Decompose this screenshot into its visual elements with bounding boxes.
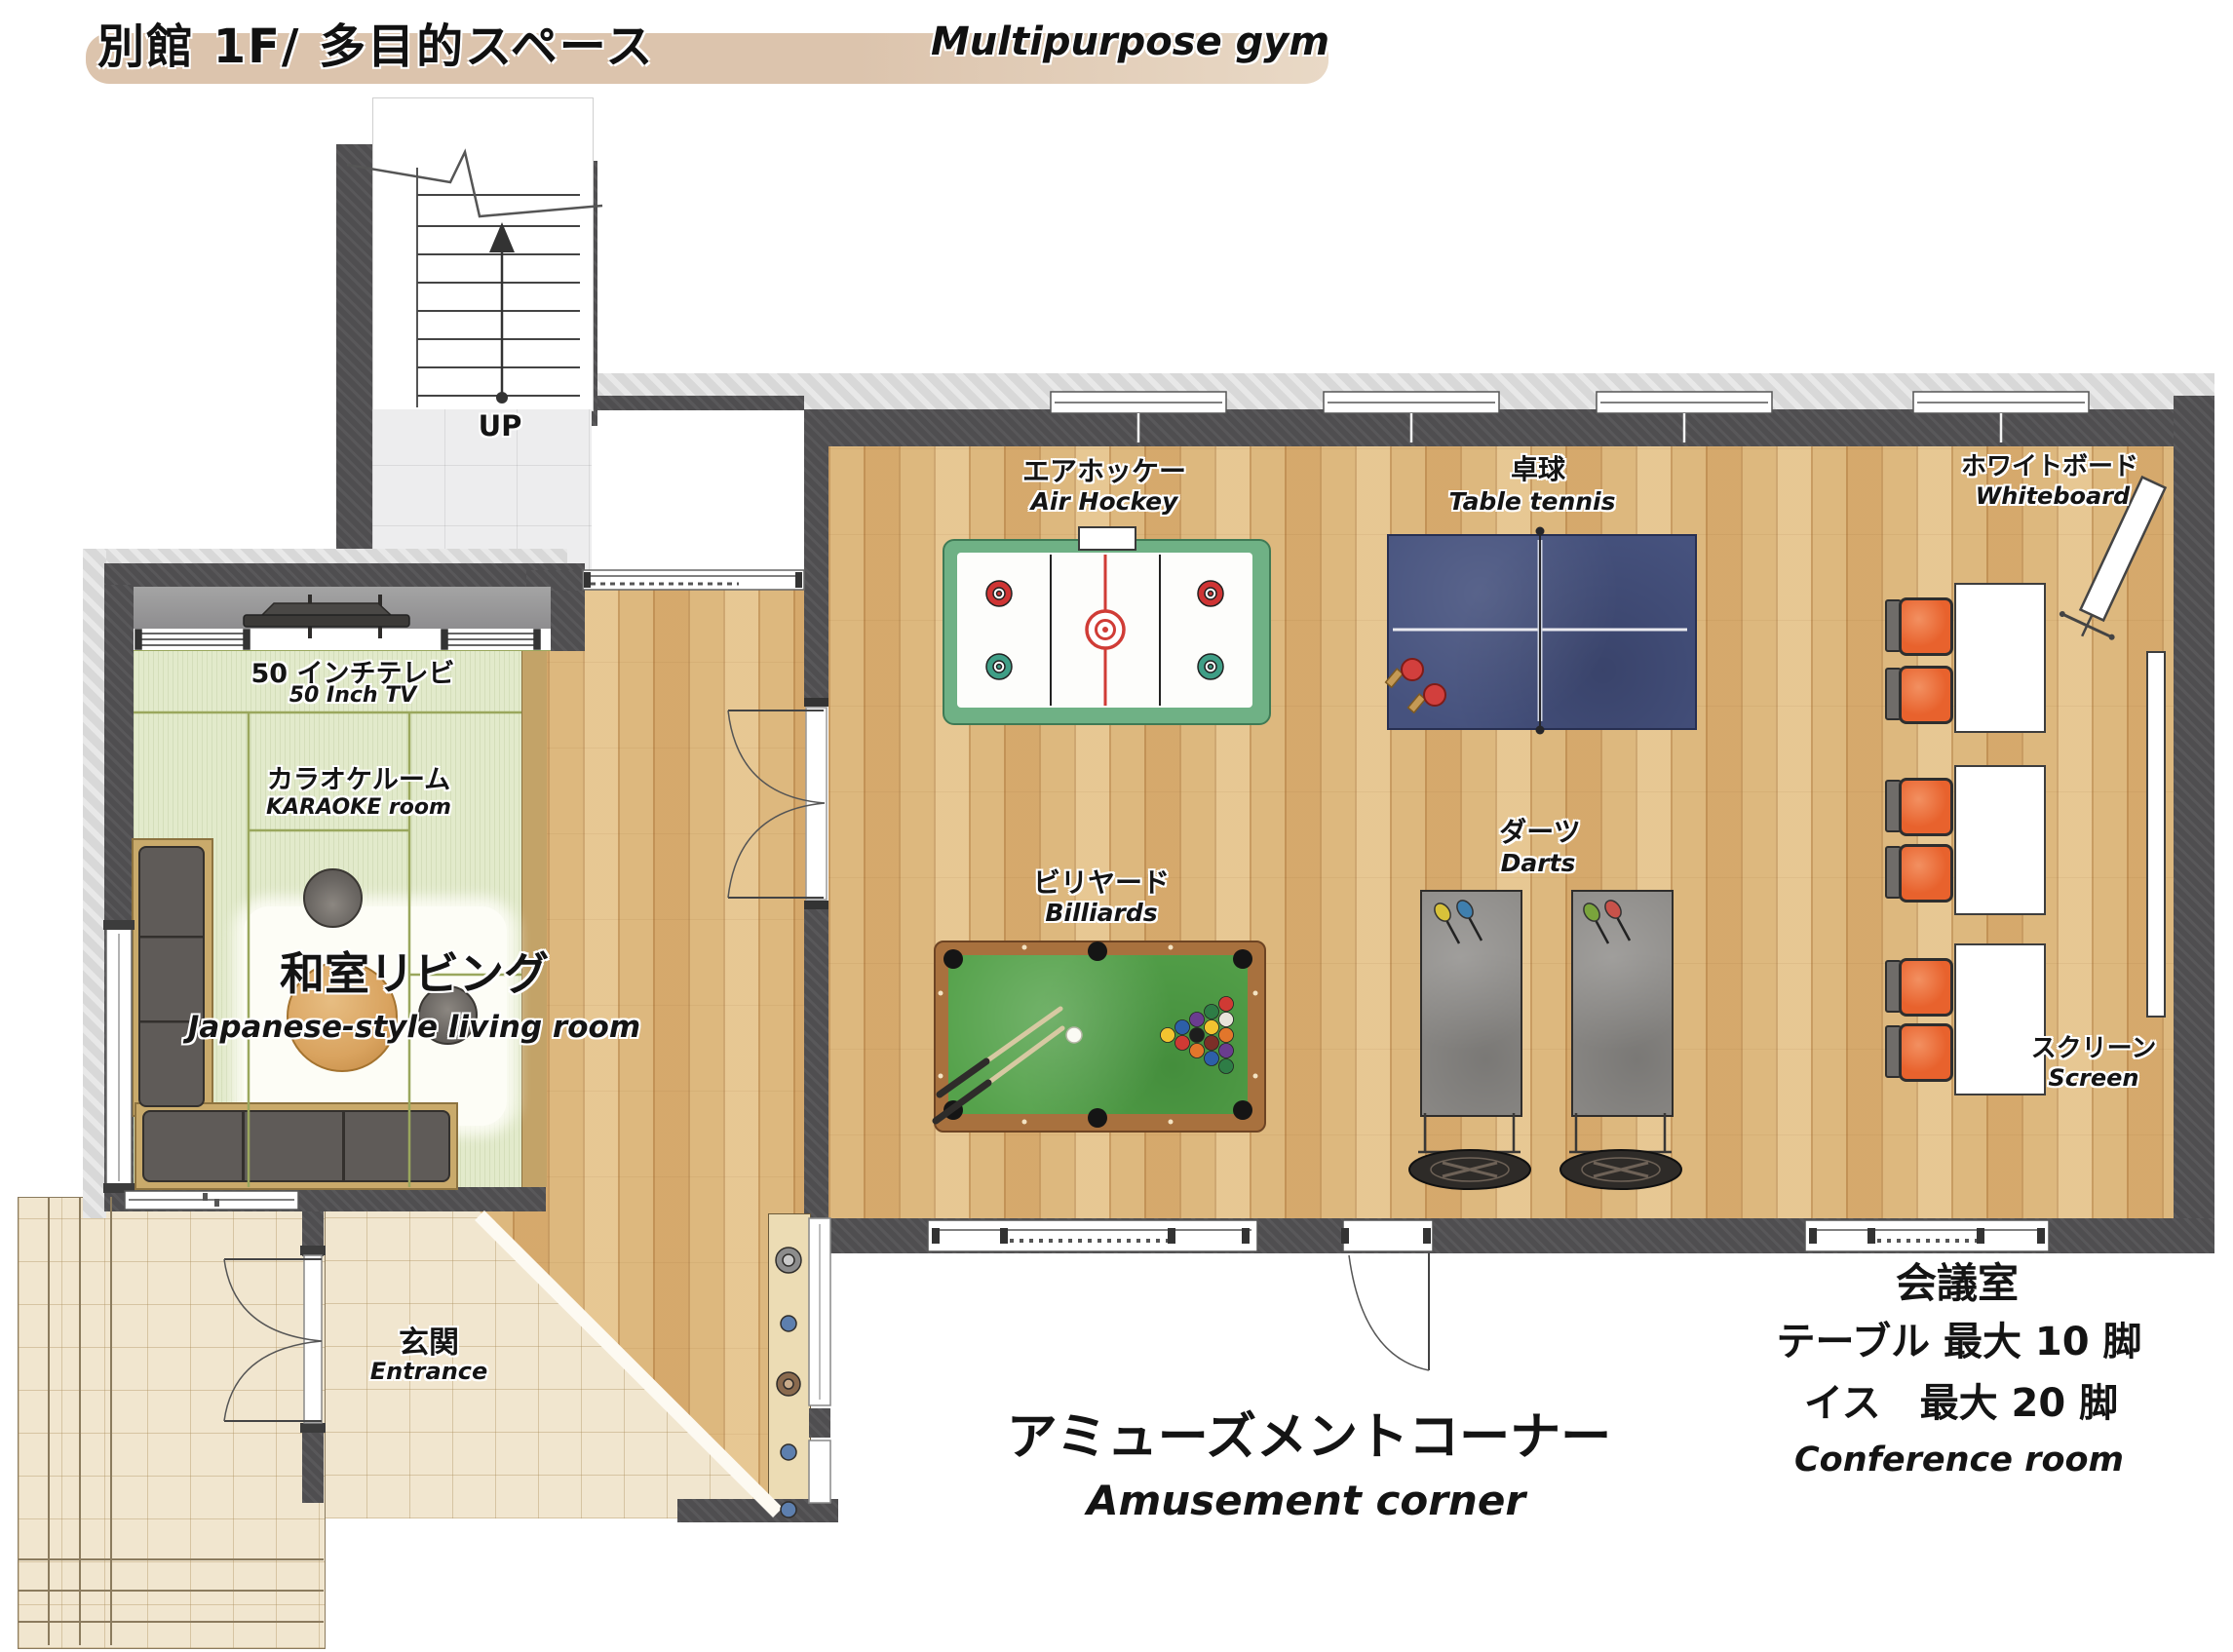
gym-south-door <box>1341 1220 1433 1370</box>
karaoke-label-en: KARAOKE room <box>266 795 451 820</box>
dart-stands <box>1418 1113 1672 1152</box>
living-room-label-en: Japanese-style living room <box>188 1010 640 1045</box>
gym-north-windows <box>1051 392 2089 442</box>
table-tennis-label-en: Table tennis <box>1448 487 1615 516</box>
conference-label-jp: 会議室 <box>1896 1250 2019 1310</box>
screen-label-jp: スクリーン <box>2031 1028 2157 1064</box>
entrance-double-door <box>224 1246 326 1433</box>
up-label: UP <box>479 409 522 442</box>
shoji-rails <box>135 630 540 649</box>
gym-south-window-west <box>928 1220 1257 1251</box>
living-room-label-jp: 和室リビング <box>280 939 549 1003</box>
dart-bases <box>1409 1150 1681 1189</box>
table-tennis-label-jp: 卓球 <box>1511 448 1565 487</box>
living-west-window <box>103 920 135 1193</box>
darts-label-jp: ダーツ <box>1499 811 1580 850</box>
karaoke-label-jp: カラオケルーム <box>267 758 450 796</box>
floor-plan-canvas: 別館 1F/ 多目的スペース Multipurpose gym <box>0 0 2233 1652</box>
entrance-label-en: Entrance <box>370 1358 488 1385</box>
gym-south-window-east <box>1805 1220 2049 1251</box>
gym-west-double-door <box>728 698 828 909</box>
porch-sliding-door <box>125 1191 298 1210</box>
entrance-threshold <box>480 1215 778 1513</box>
tv-50inch <box>244 595 409 638</box>
genkan-side-door <box>809 1218 830 1503</box>
cue-ball <box>1066 1027 1082 1043</box>
billiard-details <box>936 941 1258 1128</box>
darts <box>1432 898 1630 943</box>
table-tennis-paddles <box>1386 659 1445 712</box>
billiards-label-en: Billiards <box>1045 899 1157 927</box>
whiteboard-label-jp: ホワイトボード <box>1961 446 2138 482</box>
billiards-label-jp: ビリヤード <box>1033 862 1170 901</box>
entrance-label-jp: 玄関 <box>399 1318 459 1362</box>
billiard-cues <box>936 1009 1062 1121</box>
tv-label-en: 50 Inch TV <box>289 683 417 708</box>
screen-label-en: Screen <box>2049 1064 2139 1092</box>
darts-label-en: Darts <box>1501 849 1576 877</box>
amusement-label-en: Amusement corner <box>1087 1477 1525 1524</box>
corridor-north-door <box>583 570 804 590</box>
whiteboard-label-en: Whiteboard <box>1976 482 2130 510</box>
conference-label-en: Conference room <box>1794 1441 2124 1479</box>
genkan-stones <box>776 1248 801 1518</box>
air-hockey-label-jp: エアホッケー <box>1022 450 1186 489</box>
staircase <box>347 152 602 407</box>
conference-tables-line: テーブル 最大 10 脚 <box>1776 1310 2141 1366</box>
air-hockey-label-en: Air Hockey <box>1031 487 1178 516</box>
billiard-rack <box>1161 997 1234 1074</box>
conference-chairs-line: イス 最大 20 脚 <box>1804 1371 2118 1428</box>
table-tennis-markings <box>1386 527 1687 735</box>
air-hockey-markings <box>986 555 1223 706</box>
amusement-label-jp: アミューズメントコーナー <box>1007 1396 1611 1469</box>
